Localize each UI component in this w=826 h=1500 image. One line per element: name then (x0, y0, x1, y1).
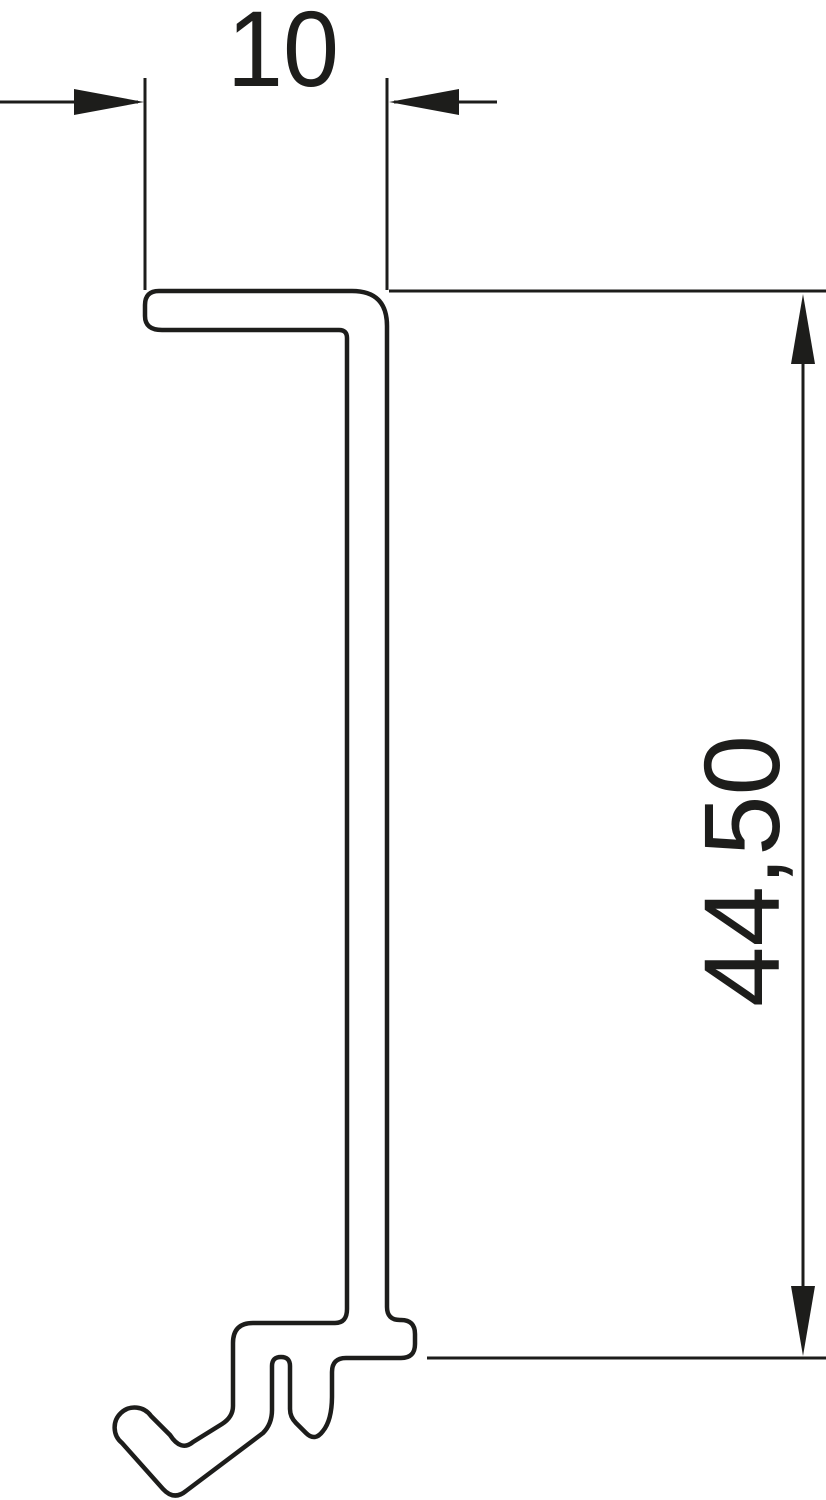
width-dim-label: 10 (227, 0, 339, 109)
drawing-canvas: 10 44,50 (0, 0, 826, 1500)
height-dim-label: 44,50 (681, 735, 802, 1007)
technical-drawing: 10 44,50 (0, 0, 826, 1500)
